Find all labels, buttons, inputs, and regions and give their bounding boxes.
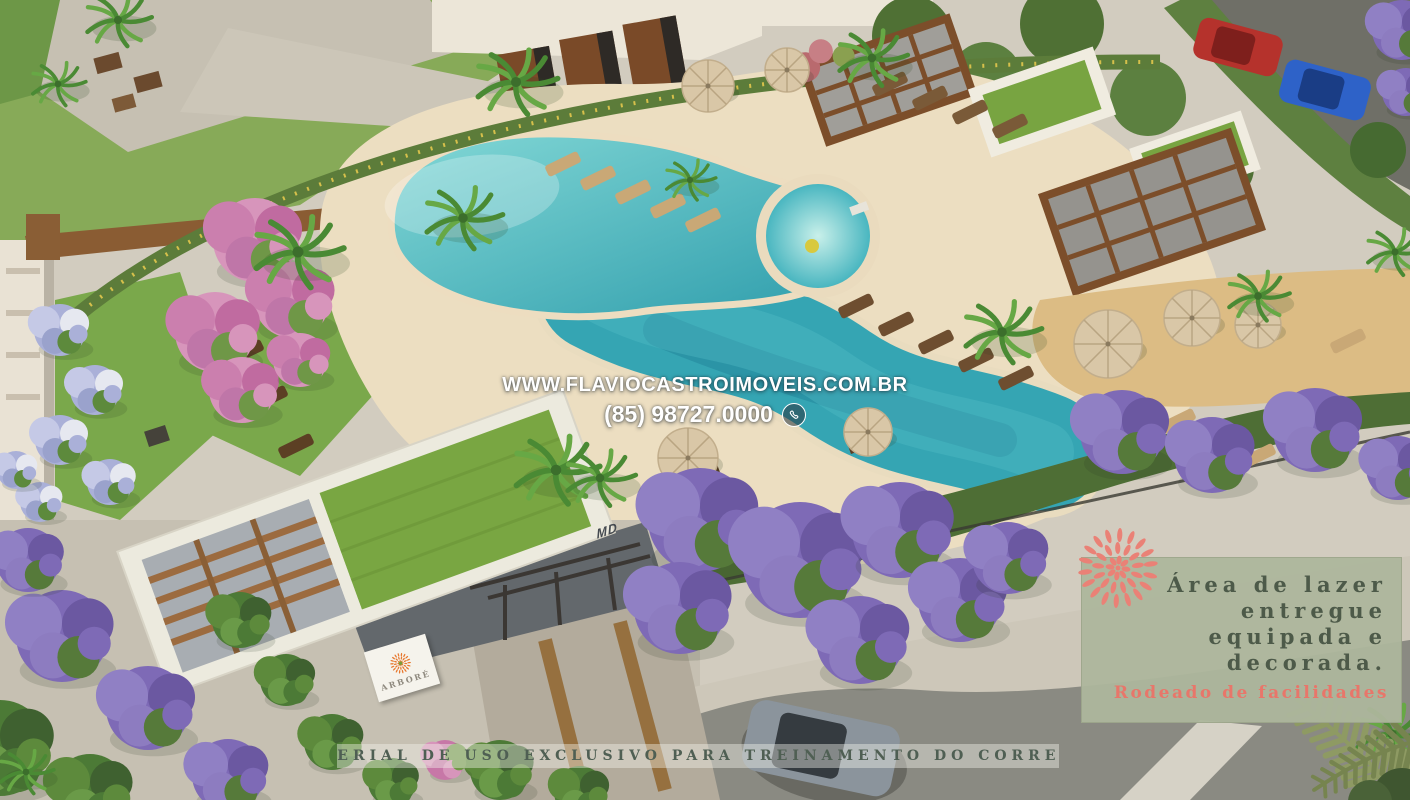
disclaimer-text: MATERIAL DE USO EXCLUSIVO PARA TREINAMEN… [337,748,1059,764]
disclaimer-strip: MATERIAL DE USO EXCLUSIVO PARA TREINAMEN… [337,744,1059,768]
promo-highlight: Rodeado de facilidades [1081,683,1402,703]
phone-circle-icon [782,403,806,427]
website-url: WWW.FLAVIOCASTROIMOVEIS.COM.BR [0,374,1410,397]
promo-line: equipada e [1081,624,1387,650]
coral-starburst-icon [1072,522,1164,614]
phone-number: (85) 98727.0000 [604,401,773,428]
promo-line: decorada. [1081,650,1387,676]
marketing-render: WWW.FLAVIOCASTROIMOVEIS.COM.BR (85) 9872… [0,0,1410,800]
contact-overlay: WWW.FLAVIOCASTROIMOVEIS.COM.BR (85) 9872… [0,374,1410,428]
